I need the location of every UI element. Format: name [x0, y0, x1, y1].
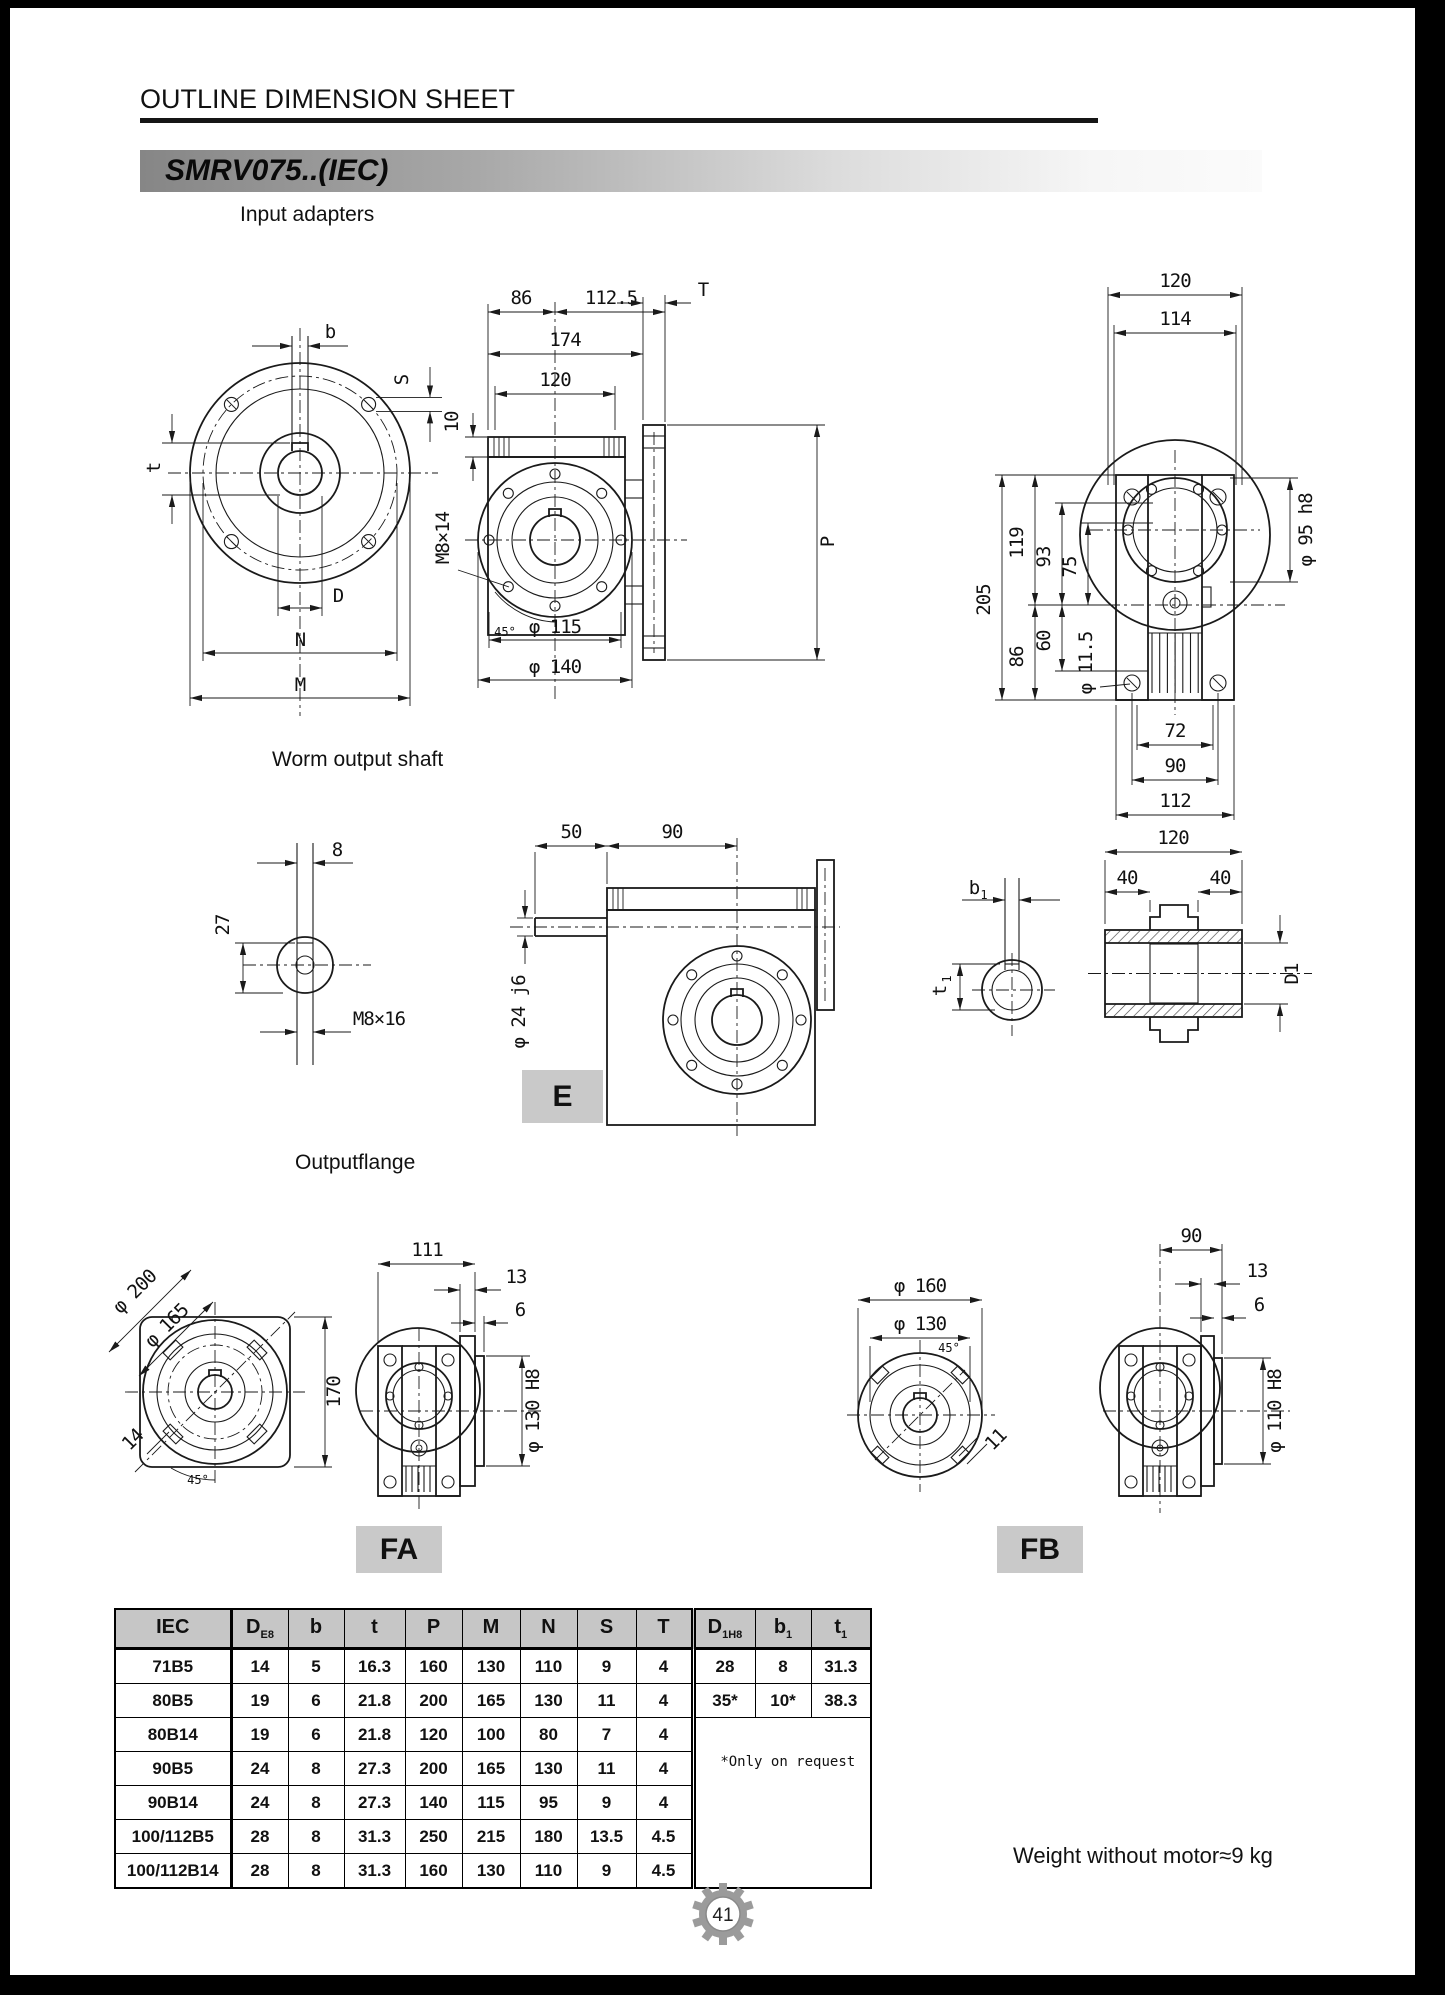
hollow-shaft-section-drawing: 120 40 40 D1	[1080, 812, 1340, 1082]
dim-label: 50	[561, 821, 582, 843]
dim-label: φ 110 H8	[1264, 1369, 1286, 1453]
cell: 6	[288, 1718, 344, 1752]
worm-shaft-end-drawing: 8 27 M8×16	[185, 825, 485, 1075]
cell: 38.3	[811, 1684, 871, 1718]
cell: 8	[288, 1752, 344, 1786]
page-border-left	[0, 0, 10, 1995]
dim-label: φ 140	[529, 656, 582, 678]
cell: 4.5	[636, 1854, 693, 1889]
dim-label: 60	[1033, 630, 1055, 651]
dim-label: 27	[212, 914, 234, 935]
page-number: 41	[712, 1905, 733, 1926]
cell: 80B14	[115, 1718, 231, 1752]
dim-label: 6	[1254, 1294, 1265, 1316]
table-note: *Only on request	[696, 1718, 871, 1770]
dim-label: M8×14	[432, 511, 454, 564]
cell: 11	[577, 1752, 636, 1786]
page-border-top	[0, 0, 1445, 8]
dim-label: T	[698, 279, 709, 301]
cell: 4	[636, 1786, 693, 1820]
dim-label: 45°	[494, 625, 516, 639]
dim-label: 90	[662, 821, 683, 843]
gear-page-number-icon: 41	[693, 1884, 753, 1944]
col-header-b1: b1	[755, 1609, 811, 1649]
col-header-n: N	[520, 1609, 577, 1649]
cell: 4	[636, 1684, 693, 1718]
cell: 19	[231, 1718, 288, 1752]
dim-label: 119	[1006, 527, 1028, 559]
cell: 21.8	[344, 1718, 405, 1752]
fa-flange-side-drawing: 111 13 6 φ 130 H8	[330, 1228, 560, 1523]
dim-label: φ 115	[529, 616, 581, 638]
cell: 130	[520, 1684, 577, 1718]
model-badge: SMRV075..(IEC)	[140, 150, 1262, 192]
dimension-sheet-page: OUTLINE DIMENSION SHEET SMRV075..(IEC) I…	[0, 0, 1445, 1995]
cell: 140	[405, 1786, 462, 1820]
cell: 8	[755, 1649, 811, 1684]
cell: 27.3	[344, 1786, 405, 1820]
dim-label: 40	[1210, 867, 1231, 889]
dim-label: 114	[1159, 308, 1191, 330]
cell: 95	[520, 1786, 577, 1820]
cell: 100/112B5	[115, 1820, 231, 1854]
dim-label: S	[391, 374, 413, 385]
cell: 71B5	[115, 1649, 231, 1684]
dim-label: φ 200	[109, 1265, 162, 1318]
dim-label: φ 130 H8	[522, 1369, 544, 1453]
dim-label: 45°	[187, 1473, 209, 1487]
cell: 80B5	[115, 1684, 231, 1718]
dim-label: φ 11.5	[1075, 632, 1097, 695]
cell: 35*	[693, 1684, 755, 1718]
dim-label: b	[969, 877, 980, 899]
section-input-adapters: Input adapters	[240, 203, 374, 227]
cell: 4.5	[636, 1820, 693, 1854]
dim-label: 14	[118, 1424, 149, 1455]
page-title: OUTLINE DIMENSION SHEET	[140, 84, 515, 115]
dim-label: D	[333, 585, 344, 607]
view-label-FA: FA	[356, 1526, 442, 1573]
model-badge-text: SMRV075..(IEC)	[140, 154, 388, 188]
dim-label: N	[295, 629, 306, 651]
dim-label: 11	[981, 1424, 1012, 1455]
cell: 80	[520, 1718, 577, 1752]
cell: 165	[462, 1752, 520, 1786]
dim-label: b	[325, 321, 336, 343]
dim-label: 90	[1181, 1225, 1202, 1247]
col-header-s: S	[577, 1609, 636, 1649]
col-header-b: b	[288, 1609, 344, 1649]
cell: 130	[462, 1649, 520, 1684]
cell: 8	[288, 1854, 344, 1889]
cell: 160	[405, 1649, 462, 1684]
dim-label: D1	[1281, 963, 1303, 984]
dim-label: 40	[1117, 867, 1138, 889]
cell: 110	[520, 1854, 577, 1889]
view-label-E-text: E	[552, 1080, 572, 1114]
cell: 100	[462, 1718, 520, 1752]
dim-label: 45°	[938, 1341, 960, 1355]
fb-flange-front-drawing: φ 160 φ 130 45° 11	[835, 1252, 1085, 1507]
cell: 14	[231, 1649, 288, 1684]
dim-label: 112.5	[585, 287, 637, 309]
cell: 165	[462, 1684, 520, 1718]
cell: 19	[231, 1684, 288, 1718]
dim-label: φ 24 j6	[508, 975, 530, 1049]
dim-label: 112	[1159, 790, 1190, 812]
section-worm-output-shaft: Worm output shaft	[272, 748, 443, 772]
dim-label: 174	[549, 329, 581, 351]
cell: 4	[636, 1649, 693, 1684]
cell: 9	[577, 1649, 636, 1684]
col-header-t: t	[344, 1609, 405, 1649]
cell: 110	[520, 1649, 577, 1684]
section-outputflange: Outputflange	[295, 1151, 415, 1175]
title-rule	[140, 118, 1098, 123]
input-adapter-side-drawing: 86 112.5 174 120 10 M8×14 45° T P φ 115 …	[425, 240, 855, 745]
dim-label: 120	[539, 369, 571, 391]
dim-label: 86	[1006, 646, 1028, 667]
fa-flange-front-drawing: φ 200 φ 165 170 14 45°	[95, 1252, 350, 1512]
dimension-table: IEC DE8 b t P M N S T D1H8 b1 t1 71B5145…	[114, 1608, 872, 1889]
col-header-p: P	[405, 1609, 462, 1649]
dim-label: 75	[1059, 557, 1081, 578]
cell: 90B14	[115, 1786, 231, 1820]
dim-label: 10	[441, 411, 463, 432]
weight-note: Weight without motor≈9 kg	[1013, 1843, 1273, 1869]
dim-label: 13	[1247, 1260, 1268, 1282]
view-label-FB: FB	[997, 1526, 1083, 1573]
col-header-m: M	[462, 1609, 520, 1649]
cell: 8	[288, 1820, 344, 1854]
cell: 9	[577, 1854, 636, 1889]
cell: 16.3	[344, 1649, 405, 1684]
dim-label: M8×16	[353, 1008, 406, 1030]
input-adapter-front-drawing: b S t D N M	[140, 268, 450, 723]
cell: 28	[693, 1649, 755, 1684]
output-bore-view-drawing: b 1 t 1	[900, 858, 1070, 1068]
table-header-row: IEC DE8 b t P M N S T D1H8 b1 t1	[115, 1609, 871, 1649]
cell: 200	[405, 1684, 462, 1718]
dim-label: φ 130	[894, 1313, 947, 1335]
cell: 31.3	[344, 1820, 405, 1854]
cell: 28	[231, 1820, 288, 1854]
cell: 6	[288, 1684, 344, 1718]
cell: 24	[231, 1786, 288, 1820]
dim-label: 8	[332, 839, 343, 861]
dim-label: P	[817, 536, 839, 547]
cell: 9	[577, 1786, 636, 1820]
table-row: 80B519621.8200165130114 35*10*38.3	[115, 1684, 871, 1718]
dim-label: 90	[1165, 755, 1186, 777]
cell: 31.3	[811, 1649, 871, 1684]
cell: 160	[405, 1854, 462, 1889]
dim-label: φ 160	[894, 1275, 947, 1297]
input-adapter-rear-drawing: 120 114 205 119 86 93 60 75 φ 95 h8 φ 11…	[940, 235, 1340, 835]
cell: 215	[462, 1820, 520, 1854]
cell: 27.3	[344, 1752, 405, 1786]
cell: 250	[405, 1820, 462, 1854]
cell: 8	[288, 1786, 344, 1820]
dim-label: 86	[511, 287, 532, 309]
dim-label: 72	[1165, 720, 1186, 742]
col-header-d1: D1H8	[693, 1609, 755, 1649]
dim-label: t	[929, 986, 951, 996]
cell: 90B5	[115, 1752, 231, 1786]
cell: 130	[462, 1854, 520, 1889]
view-label-FA-text: FA	[380, 1533, 418, 1567]
dim-sub-label: 1	[980, 888, 987, 902]
dim-label: t	[143, 463, 165, 473]
dim-sub-label: 1	[940, 975, 954, 982]
dim-label: 93	[1033, 546, 1055, 567]
dim-label: φ 95 h8	[1295, 493, 1317, 567]
cell: 5	[288, 1649, 344, 1684]
col-header-t1: t1	[811, 1609, 871, 1649]
dim-label: 13	[506, 1266, 527, 1288]
col-header-iec: IEC	[115, 1609, 231, 1649]
page-border-right	[1415, 0, 1445, 1995]
cell: 130	[520, 1752, 577, 1786]
cell: 11	[577, 1684, 636, 1718]
cell: 4	[636, 1752, 693, 1786]
dim-label: M	[295, 674, 306, 696]
page-border-bottom	[0, 1975, 1445, 1995]
col-header-t2: T	[636, 1609, 693, 1649]
cell: 31.3	[344, 1854, 405, 1889]
cell: 180	[520, 1820, 577, 1854]
table-row: 71B514516.316013011094 28831.3	[115, 1649, 871, 1684]
dim-label: 120	[1159, 270, 1191, 292]
cell: 100/112B14	[115, 1854, 231, 1889]
view-label-FB-text: FB	[1020, 1533, 1060, 1567]
dim-label: 6	[515, 1299, 526, 1321]
view-label-E: E	[522, 1070, 603, 1123]
cell: 115	[462, 1786, 520, 1820]
cell: 7	[577, 1718, 636, 1752]
cell: 28	[231, 1854, 288, 1889]
table-note-cell: *Only on request	[693, 1718, 871, 1889]
cell: 4	[636, 1718, 693, 1752]
table-row: 80B1419621.81201008074 *Only on request	[115, 1718, 871, 1752]
cell: 24	[231, 1752, 288, 1786]
dim-label: 111	[411, 1239, 443, 1261]
dim-label: 205	[973, 584, 995, 615]
fb-flange-side-drawing: 90 13 6 φ 110 H8	[1075, 1228, 1345, 1523]
cell: 200	[405, 1752, 462, 1786]
cell: 13.5	[577, 1820, 636, 1854]
cell: 10*	[755, 1684, 811, 1718]
col-header-d: DE8	[231, 1609, 288, 1649]
cell: 21.8	[344, 1684, 405, 1718]
dim-label: 120	[1157, 827, 1189, 849]
cell: 120	[405, 1718, 462, 1752]
